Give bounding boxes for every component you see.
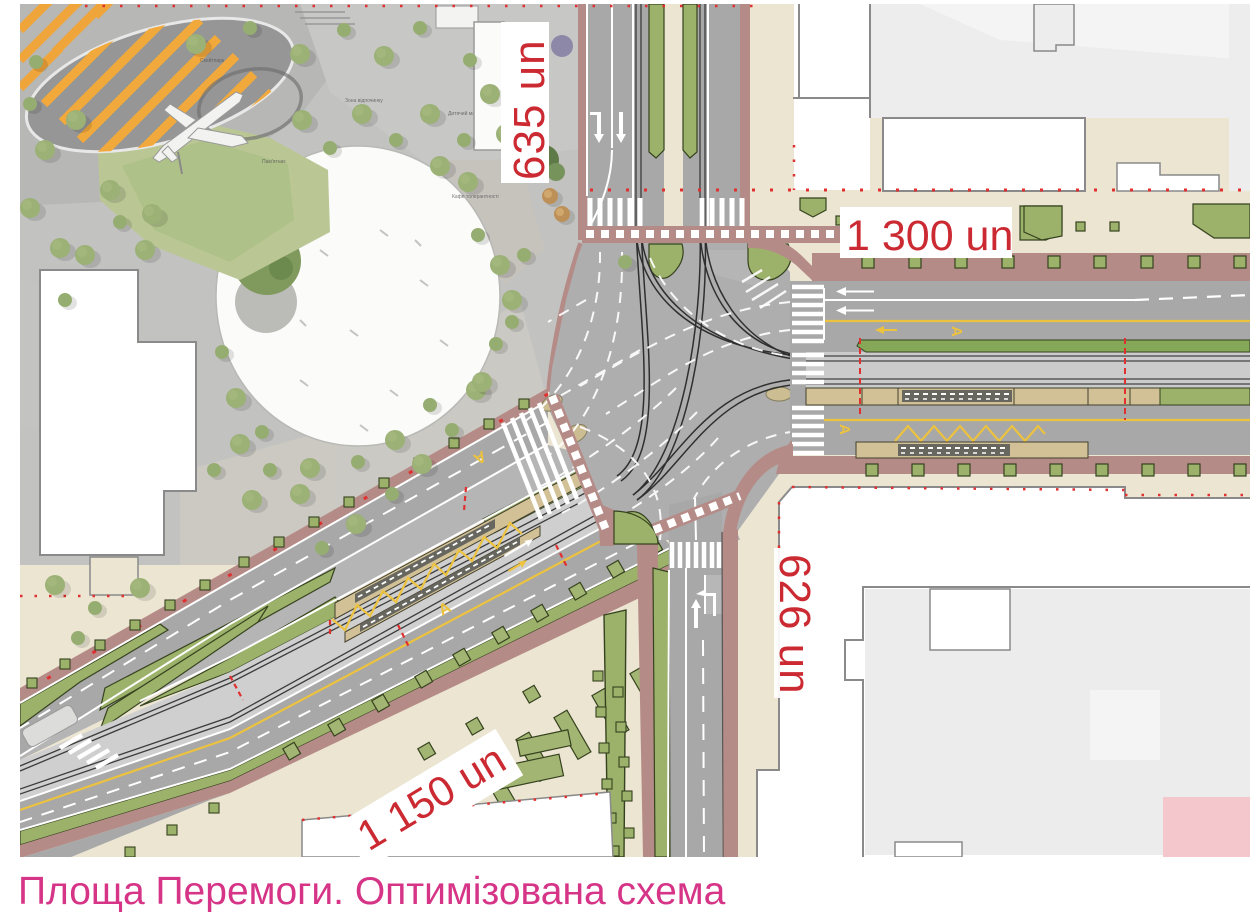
svg-text:Площа Перемоги. Оптимізована с: Площа Перемоги. Оптимізована схема: [18, 870, 726, 913]
svg-text:A: A: [948, 326, 965, 337]
svg-text:626 un: 626 un: [770, 554, 819, 695]
svg-text:635 un: 635 un: [505, 39, 554, 180]
svg-text:Зона відпочинку: Зона відпочинку: [345, 98, 383, 104]
svg-text:Скейтпарк: Скейтпарк: [200, 57, 225, 64]
svg-text:A: A: [836, 424, 853, 435]
svg-text:Пам'ятник: Пам'ятник: [262, 159, 286, 165]
svg-text:Кафе толерантності: Кафе толерантності: [452, 194, 499, 200]
svg-text:1 300 un: 1 300 un: [846, 212, 1013, 260]
